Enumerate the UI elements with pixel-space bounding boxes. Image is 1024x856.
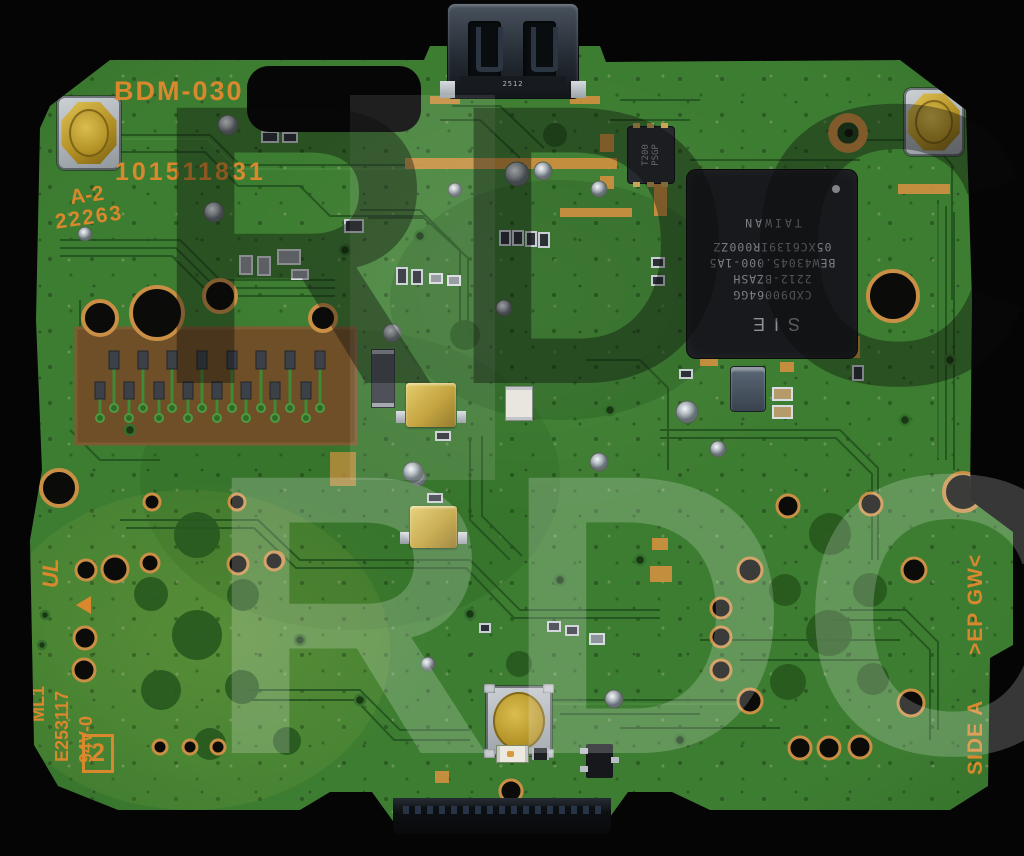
solder-flange [400, 532, 409, 544]
chip-country: TAIWAN [742, 215, 802, 231]
connector-pins [403, 806, 601, 814]
board-serial-label: 101511831 [115, 158, 266, 187]
panel-marking-label: >EP GW< [964, 554, 988, 655]
flammability-label-ml1: ML1 [28, 686, 49, 722]
ic-pad [633, 182, 640, 187]
main-soc-chip: SIE CXD90064GG 2212-BZASH BEW43045.000-1… [687, 170, 857, 358]
regulator-line1: T200 [641, 144, 651, 166]
ic-pad [661, 123, 668, 128]
transistor-leg [580, 748, 588, 754]
usb-marking: 2512 [503, 80, 524, 88]
transistor-leg [580, 766, 588, 772]
circuit-board: SIE CXD90064GG 2212-BZASH BEW43045.000-1… [0, 0, 1024, 856]
fiducial-center-dot [845, 129, 853, 137]
ic-pad [647, 123, 654, 128]
regulator-line2: PSGP [651, 144, 661, 166]
ic-pad [647, 182, 654, 187]
flammability-label-e253117: E253117 [52, 691, 73, 762]
ul-certification-mark: UL [38, 559, 64, 588]
regulator-marking: T200 PSGP [641, 144, 661, 166]
ic-pad [633, 123, 640, 128]
solder-flange [458, 532, 467, 544]
usb-mount-leg [571, 81, 586, 98]
gold-mic-block-lower [410, 506, 457, 548]
tact-switch-top-left [57, 96, 121, 170]
switch-gold-dome [493, 692, 546, 751]
triangle-marker [76, 596, 91, 614]
watermark-highlight-strip [350, 95, 495, 480]
layer-marker-box: 2 [82, 734, 114, 773]
chip-brand: SIE [744, 313, 800, 334]
usb-pin-shape [476, 27, 503, 72]
transistor-sot23 [586, 744, 613, 778]
switch-tab [543, 684, 554, 693]
led-emitter [507, 751, 514, 757]
usb-pin-shape [531, 27, 558, 72]
capacitor-large [731, 367, 765, 411]
transistor-leg [611, 757, 619, 763]
usb-base: 2512 [460, 76, 566, 92]
led-component [497, 746, 528, 762]
chip-marking-text: SIE CXD90064GG 2212-BZASH BEW43045.000-1… [687, 170, 857, 358]
chip-lot-code: 2212-BZASH [732, 271, 811, 287]
usb-c-connector: 2512 [448, 4, 578, 98]
regulator-ic: T200 PSGP [628, 127, 674, 183]
chip-part-number: CXD90064GG [732, 287, 811, 303]
tact-switch-top-right [904, 88, 964, 156]
chip-code-line1: BEW43045.000-1A5 [709, 255, 836, 271]
fiducial-ring [820, 105, 876, 161]
board-model-label: BDM-030 [114, 76, 244, 107]
chip-code-line2: 05XC6139IR000ZZ [713, 239, 832, 255]
side-a-label: SIDE A [964, 700, 988, 775]
switch-tab [484, 684, 495, 693]
pcb-photo: SIE CXD90064GG 2212-BZASH BEW43045.000-1… [0, 0, 1024, 856]
bottom-edge-connector [393, 798, 611, 834]
contact-finger-area [76, 328, 356, 444]
switch-tab [484, 749, 495, 758]
ic-pad [661, 182, 668, 187]
white-smd-component [506, 387, 532, 420]
resistor-component [532, 748, 549, 760]
